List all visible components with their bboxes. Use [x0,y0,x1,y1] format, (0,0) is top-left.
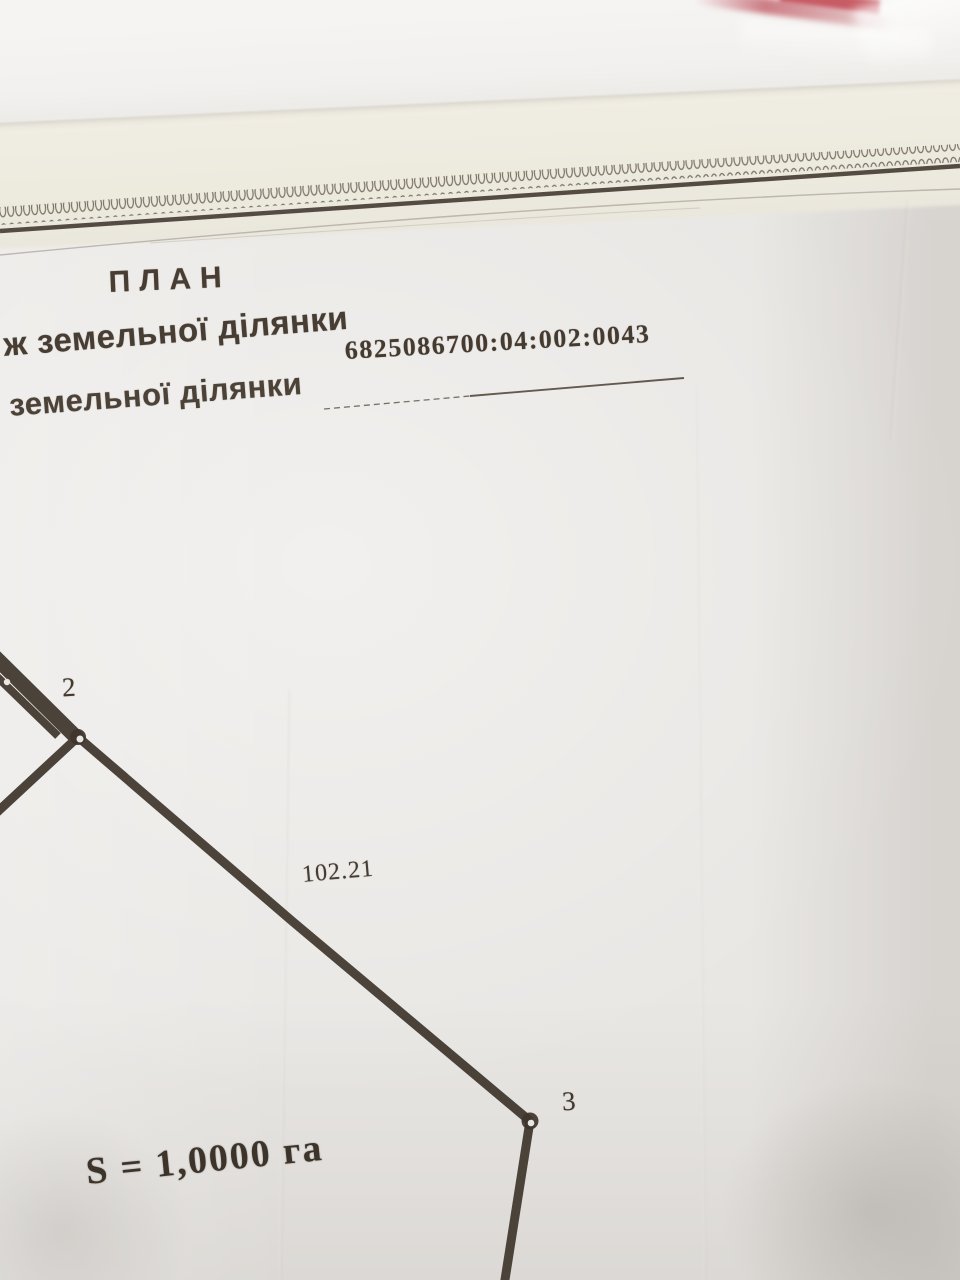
boundary-3-down [504,1121,530,1280]
vertex-3-dot [528,1120,535,1127]
plan-title: ПЛАН [108,261,231,300]
blank-underline-solid [470,378,684,396]
boundary-2-3 [78,737,530,1121]
point-2-label: 2 [61,672,76,704]
blank-underline-dashed [324,396,470,409]
boundary-2-left [0,737,78,815]
point-3-label: 3 [561,1086,576,1118]
vertex-1-dot [4,679,10,685]
document-photo: ПЛАН ж земельної ділянки 6825086700:04:0… [0,0,960,1280]
parcel-boundary [0,652,530,1280]
vertex-2-dot [77,736,84,743]
scribble-band [0,153,960,216]
plan-linework [0,0,960,1280]
